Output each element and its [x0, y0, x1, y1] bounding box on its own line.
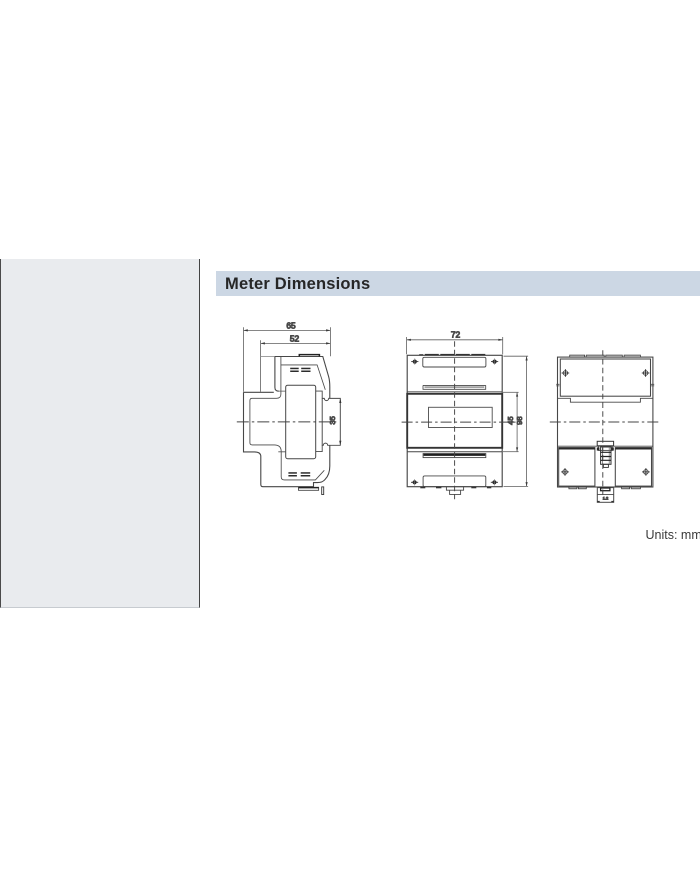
svg-text:72: 72 [451, 330, 461, 340]
svg-text:Units: mm: Units: mm [646, 528, 700, 542]
svg-text:52: 52 [290, 334, 300, 344]
svg-text:98: 98 [515, 416, 524, 424]
svg-text:35: 35 [328, 416, 337, 424]
svg-text:1.2: 1.2 [603, 496, 609, 501]
svg-text:65: 65 [286, 321, 296, 331]
svg-text:45: 45 [506, 416, 515, 424]
